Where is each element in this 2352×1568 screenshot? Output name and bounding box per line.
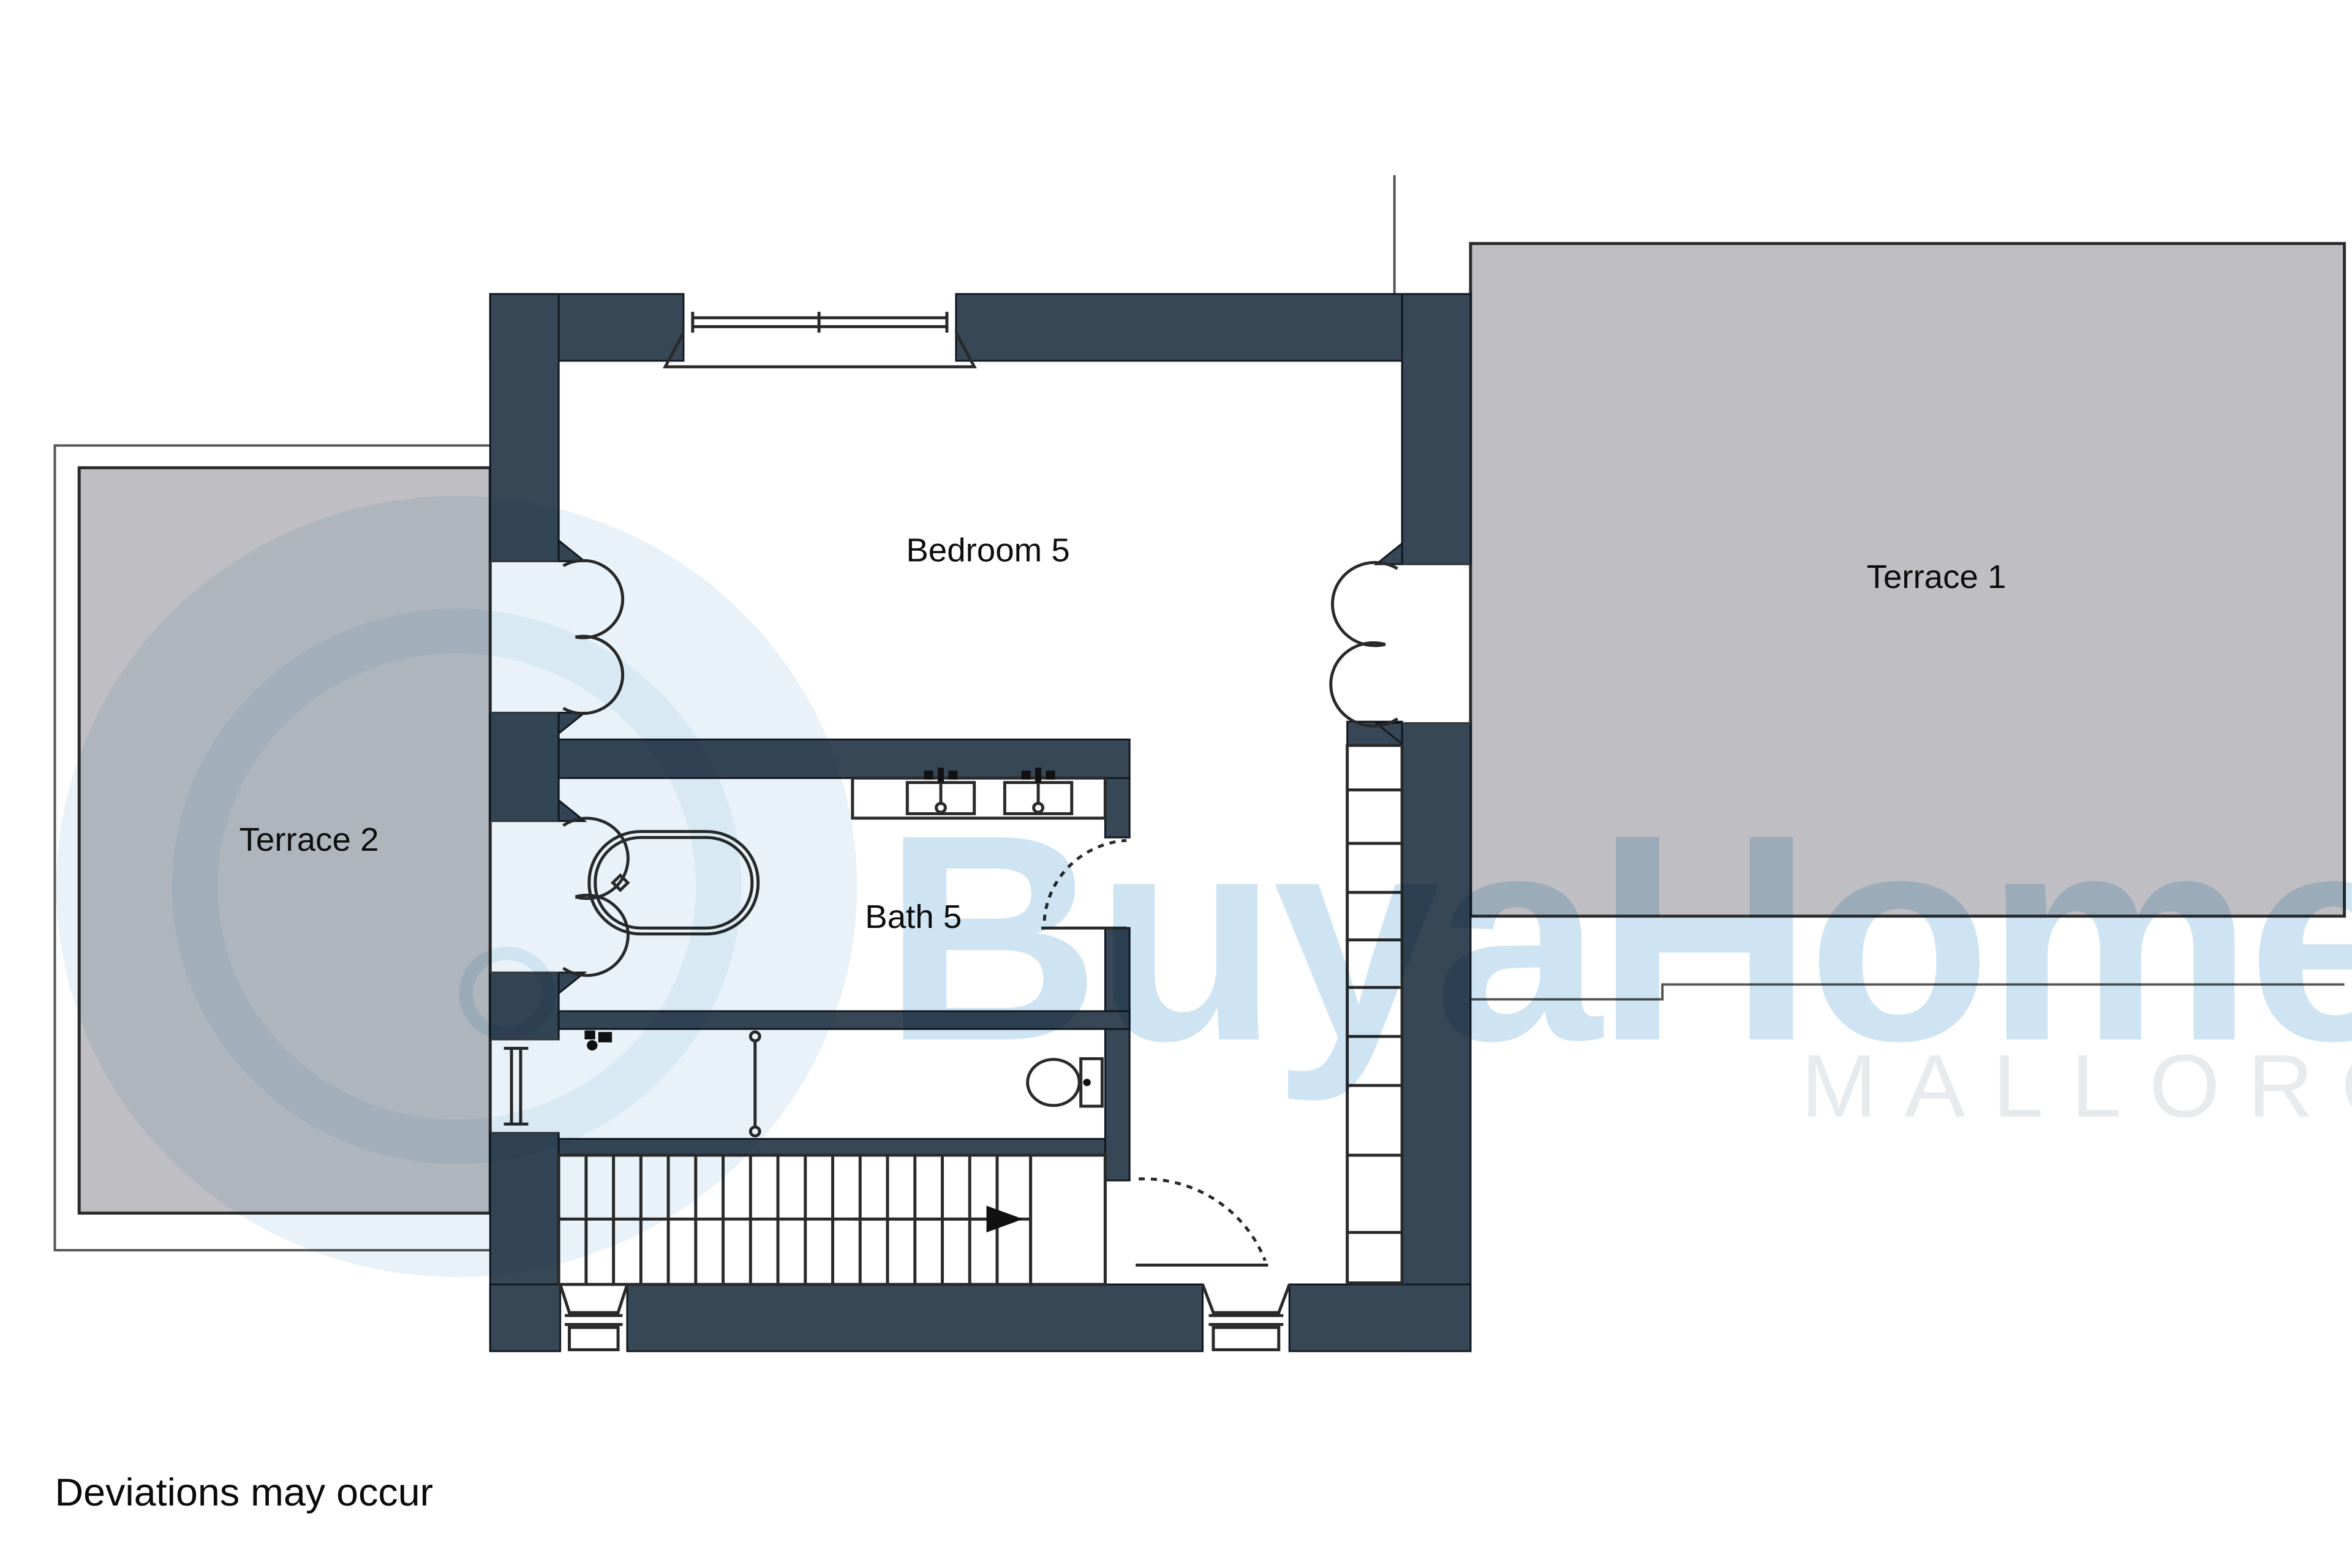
door-bedroom-terrace1 (1331, 562, 1398, 726)
label-bedroom-5: Bedroom 5 (906, 532, 1069, 568)
disclaimer-note: Deviations may occur (55, 1471, 433, 1514)
label-bath-5: Bath 5 (865, 899, 962, 935)
floor-plan-canvas: BuyaHome MALLORCA Bedroom 5 Bath 5 Terra… (0, 0, 2352, 1568)
door-stair-hall (1136, 1179, 1268, 1265)
watermark-region: MALLORCA (1801, 1037, 2352, 1136)
label-terrace-2: Terrace 2 (239, 822, 379, 858)
window-bottom-right (1202, 1284, 1289, 1350)
window-bottom-left (560, 1284, 627, 1350)
window-top (665, 312, 974, 367)
label-terrace-1: Terrace 1 (1867, 559, 2007, 595)
